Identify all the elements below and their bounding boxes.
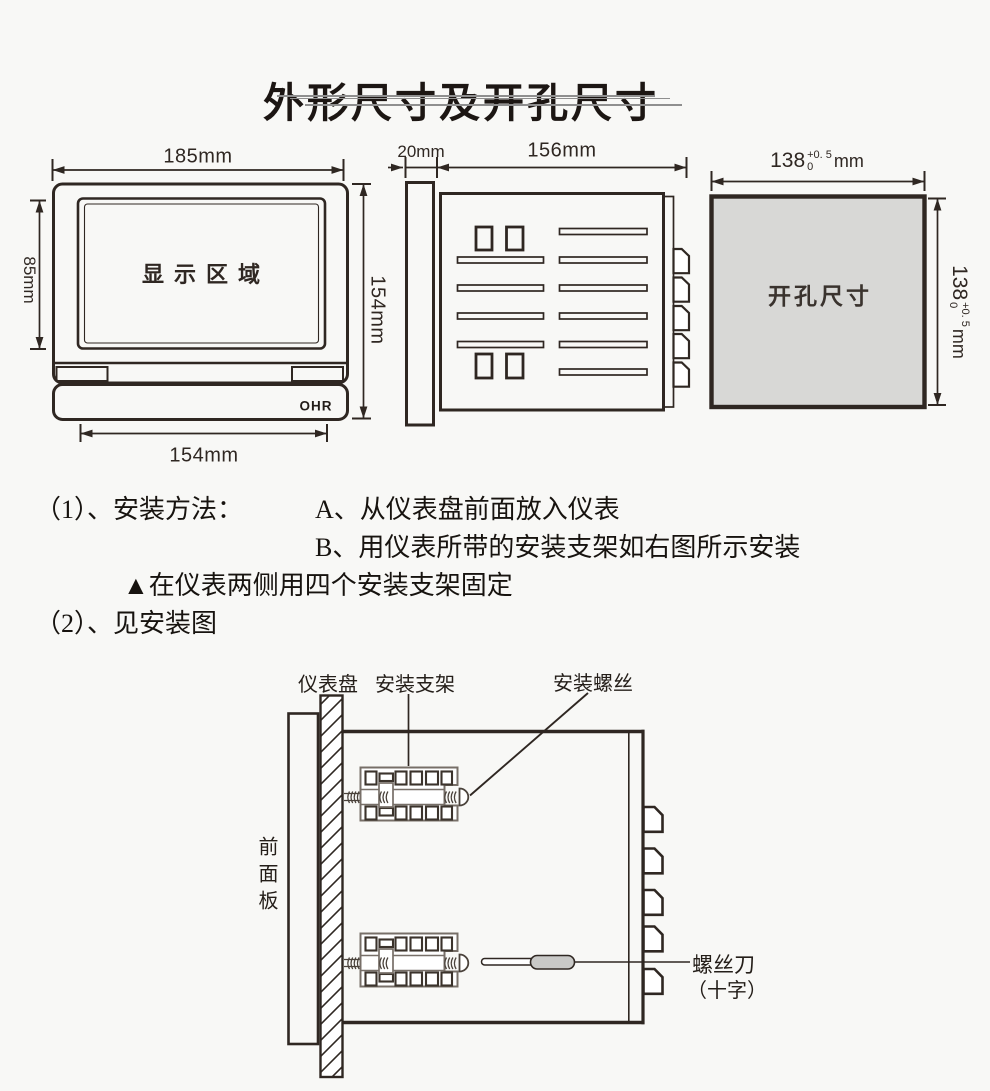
dim-138-value: 138 bbox=[770, 149, 805, 173]
dim-138-tol-sup: +0. 5 bbox=[807, 149, 832, 161]
panel-label: 仪表盘 bbox=[298, 668, 358, 697]
dim-138-tol-sup: +0. 5 bbox=[959, 302, 971, 327]
dim-138mm-top bbox=[712, 171, 925, 191]
bracket-label: 安装支架 bbox=[375, 668, 455, 697]
installation-diagram bbox=[289, 680, 691, 1091]
dim-label-85mm: 85mm bbox=[19, 256, 39, 303]
side-body bbox=[441, 194, 664, 411]
front-panel-label: 前面板 bbox=[252, 836, 281, 917]
dim-label-154mm-bottom: 154mm bbox=[169, 445, 238, 468]
cutout-area-label: 开孔尺寸 bbox=[768, 277, 872, 311]
dim-138-tol-sub: 0 bbox=[947, 302, 959, 327]
dim-label-138mm-top: 138 +0. 5 0 mm bbox=[770, 149, 864, 173]
dim-138mm-right bbox=[928, 199, 946, 406]
instruction-item1: （1）、安装方法： bbox=[35, 494, 243, 525]
dim-label-20mm: 20mm bbox=[397, 142, 444, 162]
front-panel-plate bbox=[289, 714, 319, 1045]
screw-label: 安装螺丝 bbox=[553, 667, 633, 696]
mounting-bracket-bottom bbox=[344, 934, 468, 987]
brand-logo: OHR bbox=[300, 399, 333, 414]
title-underline bbox=[277, 95, 655, 97]
page-title: 外形尺寸及开孔尺寸 bbox=[0, 69, 956, 129]
screwdriver-type-label: （十字） bbox=[687, 974, 767, 1003]
screwdriver bbox=[482, 956, 691, 970]
instruction-note: ▲在仪表两侧用四个安装支架固定 bbox=[123, 570, 513, 601]
dim-label-154mm-height: 154mm bbox=[366, 275, 389, 344]
screw-leader-line bbox=[470, 693, 588, 796]
screwdriver-handle bbox=[531, 956, 575, 970]
instruction-item2: （2）、见安装图 bbox=[35, 608, 217, 639]
instruction-step-b: B、用仪表所带的安装支架如右图所示安装 bbox=[315, 532, 800, 563]
title-underline bbox=[290, 98, 670, 99]
mounting-bracket-top bbox=[344, 768, 468, 821]
dim-138-unit: mm bbox=[834, 151, 864, 172]
side-vent-slots bbox=[458, 227, 648, 378]
dim-154mm-bottom bbox=[81, 424, 328, 442]
install-terminals bbox=[644, 807, 663, 994]
instruction-step-a: A、从仪表盘前面放入仪表 bbox=[315, 494, 620, 525]
display-area-label: 显示区域 bbox=[142, 257, 270, 289]
dim-label-138mm-right: 138 +0. 5 0 mm bbox=[947, 265, 971, 359]
dim-138-value: 138 bbox=[947, 265, 971, 300]
dim-138-unit: mm bbox=[949, 329, 970, 359]
dim-label-185mm: 185mm bbox=[163, 146, 232, 169]
side-bezel bbox=[407, 183, 434, 426]
front-left-tab bbox=[57, 367, 108, 381]
front-right-tab bbox=[292, 367, 343, 381]
title-underline bbox=[305, 104, 682, 106]
dim-label-156mm: 156mm bbox=[527, 140, 596, 163]
dim-138-tol-sub: 0 bbox=[807, 161, 832, 173]
side-terminals bbox=[674, 249, 690, 387]
side-view-drawing bbox=[388, 157, 689, 425]
dimension-drawing-page: 外形尺寸及开孔尺寸 185mm 85mm 154mm 154mm 显示区域 OH… bbox=[0, 0, 990, 1091]
